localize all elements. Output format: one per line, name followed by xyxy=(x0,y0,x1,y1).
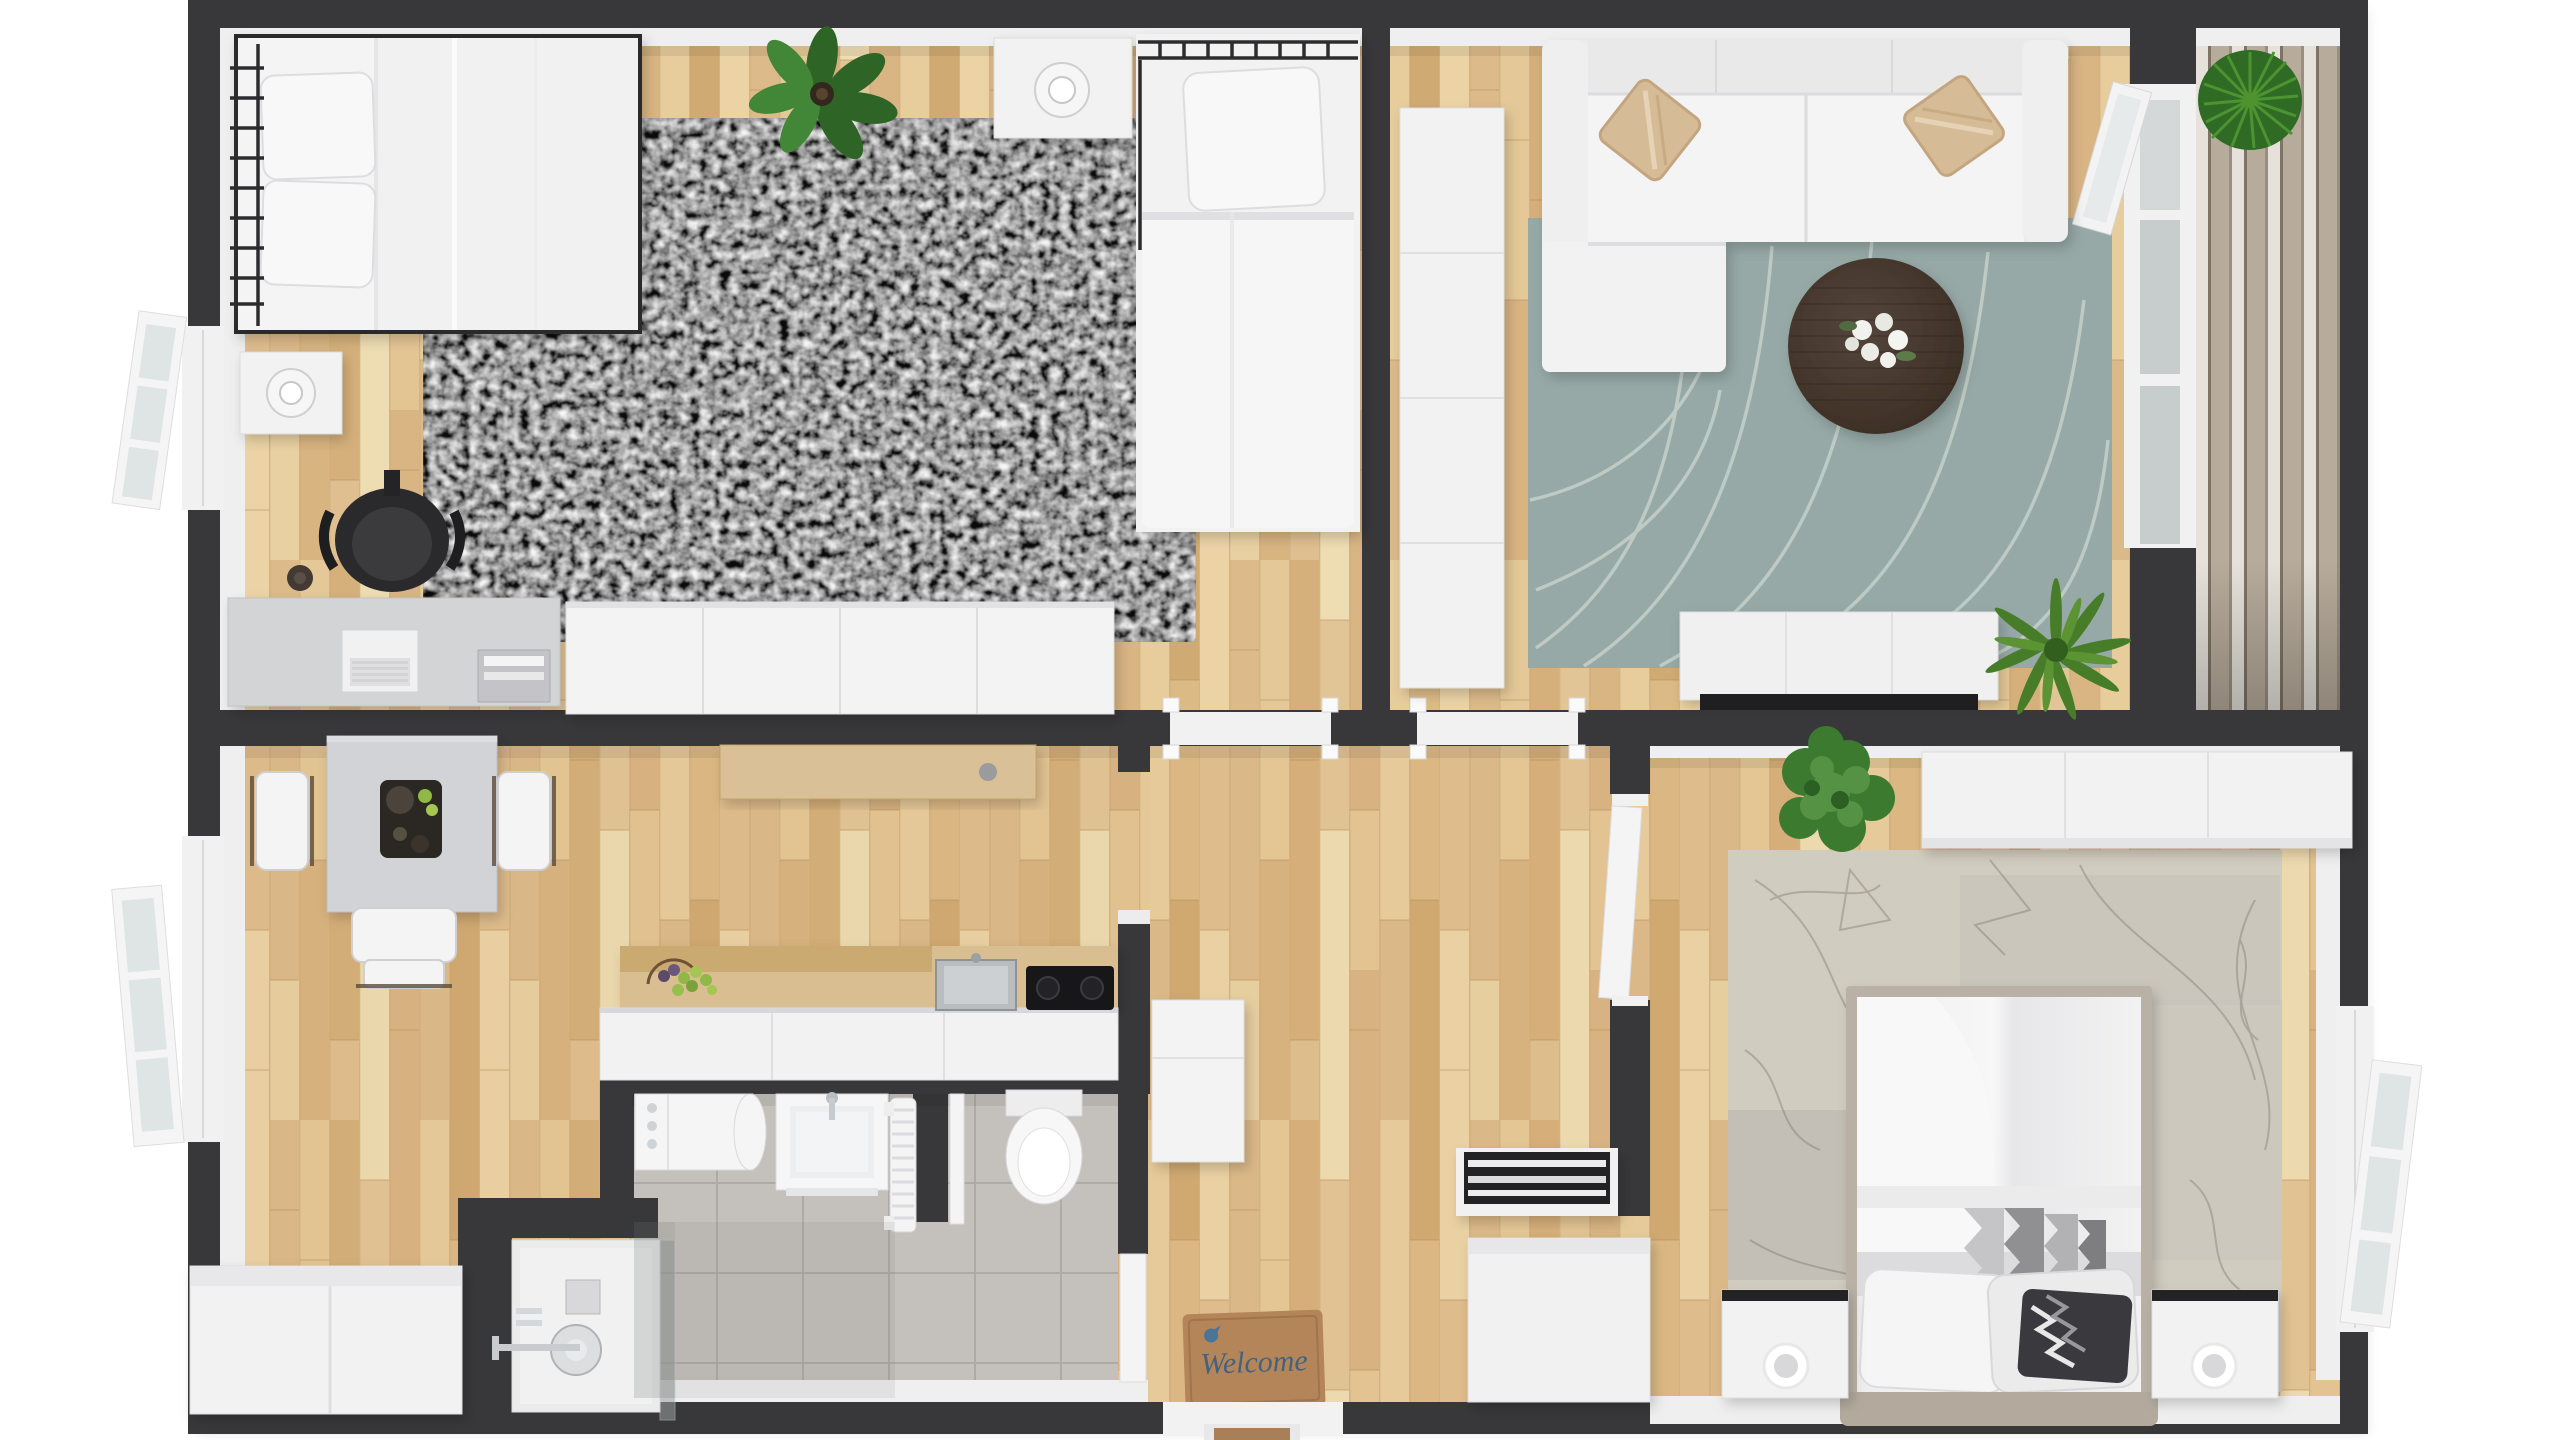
svg-text:Welcome: Welcome xyxy=(1200,1344,1308,1381)
